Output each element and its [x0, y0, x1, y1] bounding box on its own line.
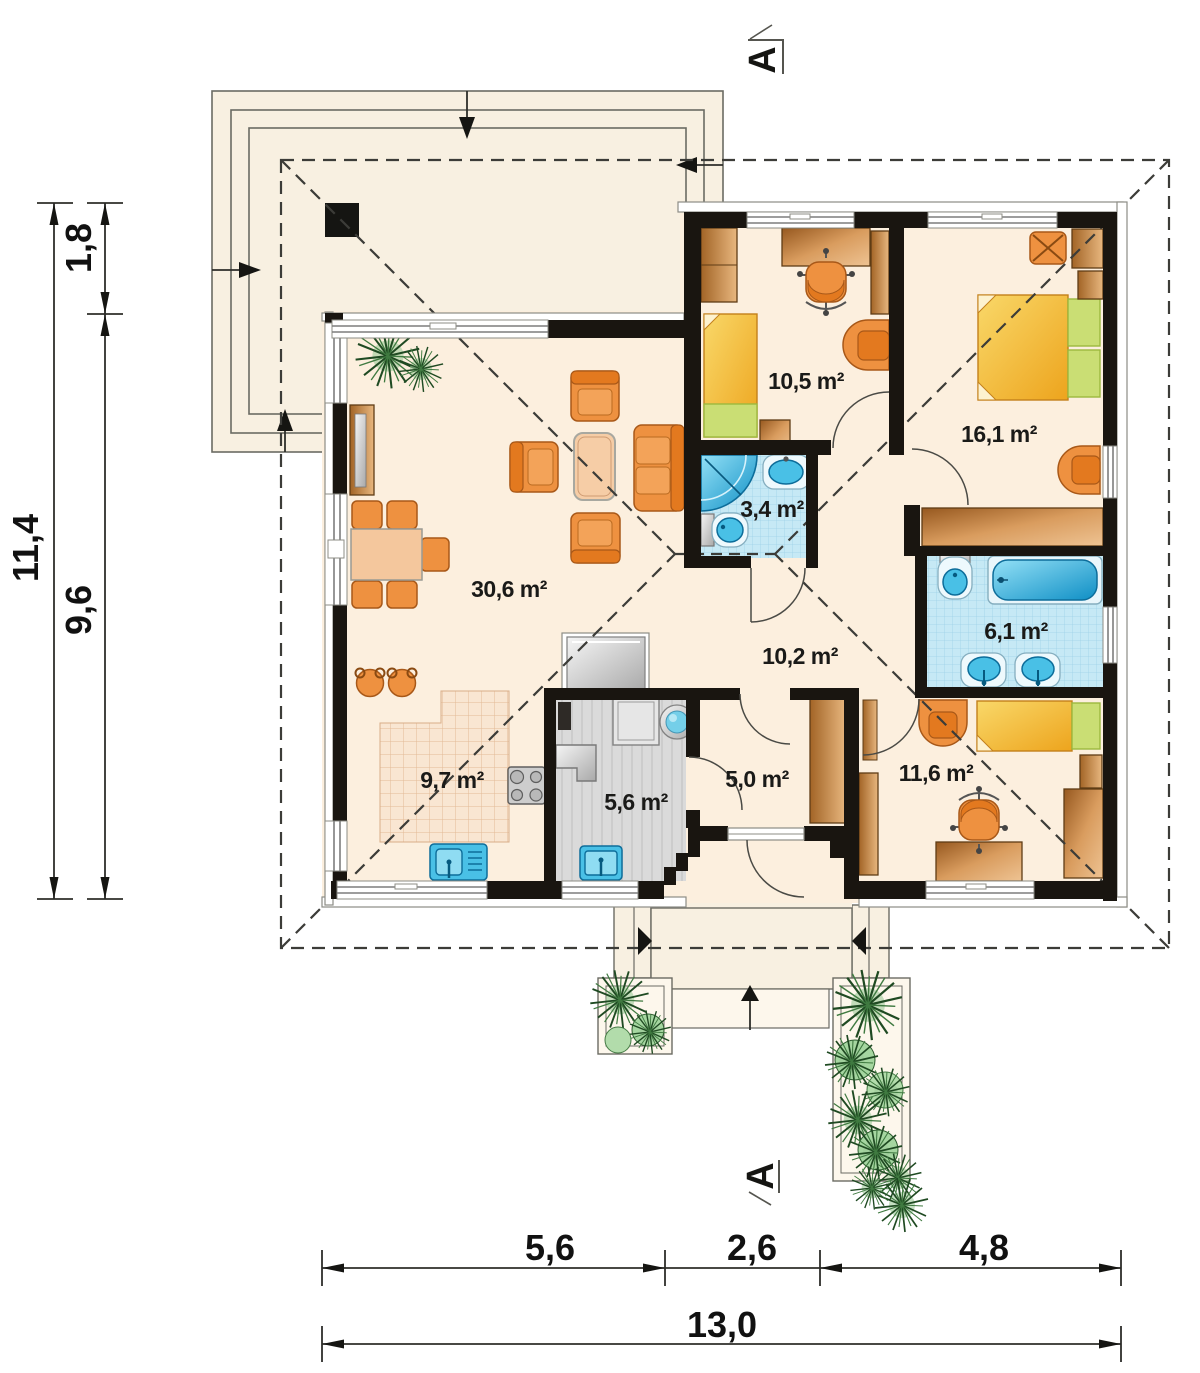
svg-text:10,2 m²: 10,2 m² [762, 643, 839, 669]
svg-text:6,1 m²: 6,1 m² [984, 618, 1048, 644]
svg-text:2,6: 2,6 [727, 1227, 777, 1268]
svg-text:5,0 m²: 5,0 m² [725, 766, 789, 792]
svg-text:5,6 m²: 5,6 m² [604, 789, 668, 815]
svg-text:11,6 m²: 11,6 m² [899, 760, 974, 786]
svg-text:9,6: 9,6 [58, 585, 99, 635]
svg-text:1,8: 1,8 [58, 223, 99, 273]
svg-text:9,7 m²: 9,7 m² [420, 767, 484, 793]
svg-text:30,6 m²: 30,6 m² [471, 576, 548, 602]
svg-text:A: A [742, 46, 784, 73]
svg-text:3,4 m²: 3,4 m² [740, 496, 804, 522]
svg-text:16,1 m²: 16,1 m² [961, 421, 1038, 447]
svg-text:4,8: 4,8 [959, 1227, 1009, 1268]
svg-text:5,6: 5,6 [525, 1227, 575, 1268]
svg-text:11,4: 11,4 [5, 514, 46, 582]
svg-text:10,5 m²: 10,5 m² [768, 368, 845, 394]
svg-text:A: A [740, 1162, 782, 1189]
svg-text:13,0: 13,0 [687, 1304, 757, 1345]
